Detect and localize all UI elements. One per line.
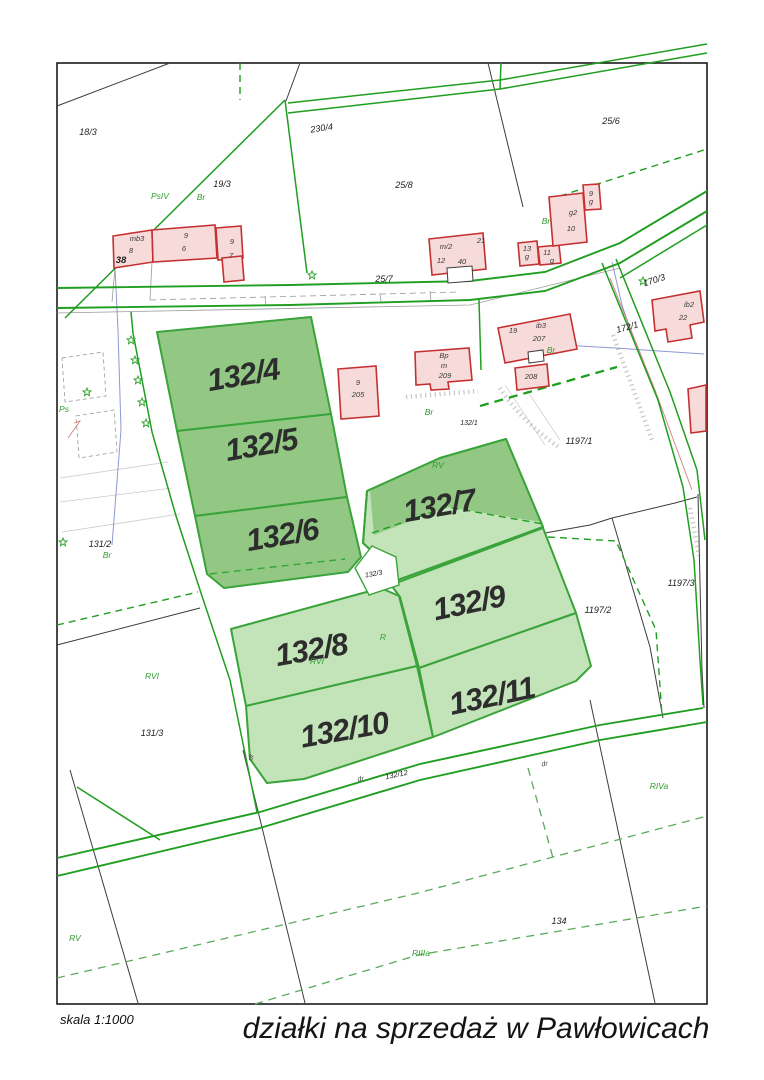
building-code: 12 [437,256,446,265]
parcel-number: 25/8 [394,180,413,190]
parcel-number: 132/1 [460,420,478,427]
landuse-label: RVI [145,671,160,681]
parcel-number: 1197/1 [566,436,593,446]
building-number: 22 [678,313,688,322]
parcel-number: 1197/2 [585,605,612,615]
building [549,193,587,246]
map-page: 132/4 132/5 132/6 132/7 132/8 132/9 132/… [0,0,764,1080]
building-code: ib3 [536,321,547,330]
building-code: 10 [567,224,576,233]
landuse-label: RIVa [650,781,669,791]
building-code: mb3 [130,234,145,243]
parcel-number: 25/7 [374,274,394,284]
landuse-label: Br [542,216,552,226]
building-annex [447,266,473,283]
landuse-label: Br [547,345,557,355]
building-code: 21 [476,236,485,245]
landuse-label: RV [432,460,445,470]
map-scale-label: skala 1:1000 [60,1012,134,1027]
parcel-number: 134 [551,916,566,926]
building [688,385,706,433]
building-number: 209 [438,371,452,380]
building-number: 208 [524,372,538,381]
landuse-label: Ps [59,404,70,414]
landuse-label: RVI [310,656,325,666]
page-title: działki na sprzedaż w Pawłowicach [243,1012,710,1045]
building-code: m/2 [440,242,453,251]
landuse-label: Br [425,407,435,417]
building-code: Bp [439,351,448,360]
landuse-label: Br [103,550,113,560]
building-code: 19 [509,326,518,335]
cadastral-map-canvas: 132/4 132/5 132/6 132/7 132/8 132/9 132/… [0,0,764,1080]
parcel-number: 18/3 [79,127,97,137]
building-code: m [441,361,447,370]
landuse-label: RV [69,933,82,943]
building-number: 205 [351,390,365,399]
landuse-label: Br [197,192,207,202]
building-code: 40 [458,257,467,266]
building-number: 38 [116,255,127,266]
landuse-label: PsIV [151,191,170,201]
parcel-number: 1197/3 [668,578,695,588]
landuse-label: RIIIa [412,948,430,958]
parcel-number: 131/2 [89,539,112,549]
building-annex [528,350,544,363]
parcel-number: 25/6 [601,116,620,126]
building-number: 207 [532,334,546,343]
landuse-label: R [380,632,386,642]
parcel-number: 131/3 [141,728,164,738]
building-code: g2 [569,208,578,217]
building-code: ib2 [684,300,695,309]
parcel-number: 19/3 [213,179,231,189]
